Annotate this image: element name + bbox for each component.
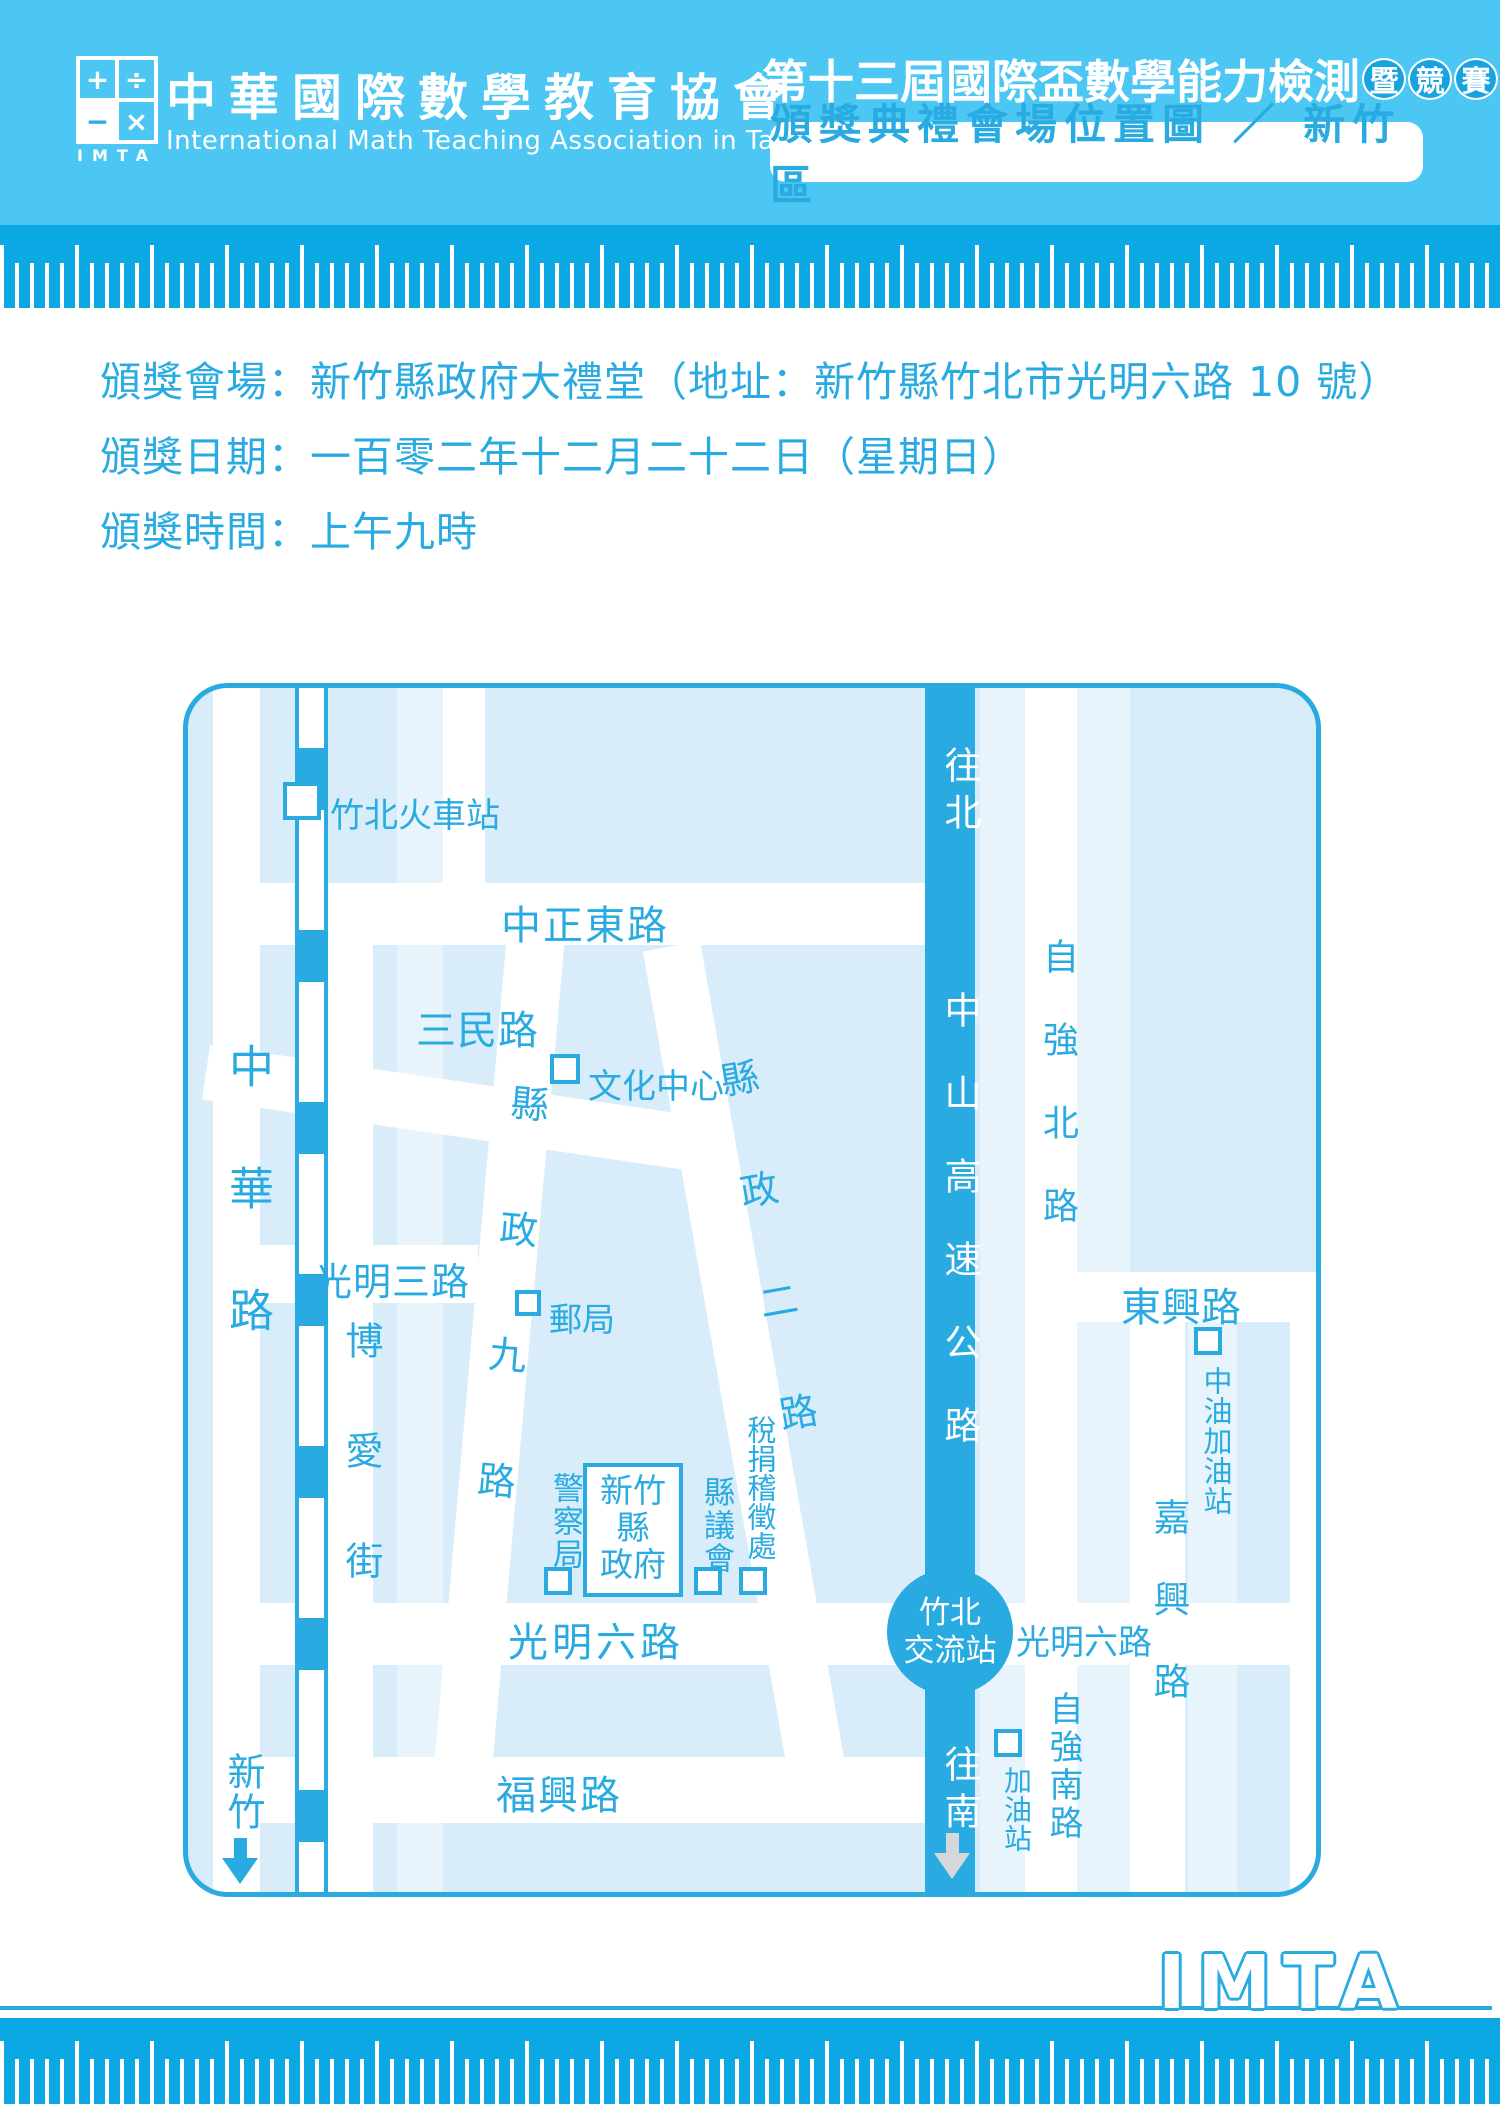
tax-office-marker — [739, 1567, 767, 1595]
train-station-marker — [283, 782, 321, 820]
culture-center-label: 文化中心 — [588, 1059, 724, 1108]
police-label: 警察局 — [543, 1472, 588, 1571]
footer-imta-logo: IMTA — [1158, 1940, 1409, 2026]
label-fuxing: 福興路 — [496, 1763, 622, 1821]
label-guangming6-east: 光明六路 — [1016, 1615, 1152, 1664]
gas-station-marker — [994, 1729, 1022, 1757]
gas-station-label: 加油站 — [996, 1766, 1036, 1853]
ruler-long-ticks — [0, 2041, 1500, 2104]
ceremony-venue: 頒獎會場：新竹縣政府大禮堂（地址：新竹縣竹北市光明六路 10 號） — [100, 345, 1400, 420]
label-guangming3: 光明三路 — [314, 1251, 470, 1306]
hsinchu-arrow-icon — [222, 1838, 258, 1884]
train-station-label: 竹北火車站 — [330, 788, 500, 837]
page-title: 頒獎典禮會場位置圖 ／ 新竹區 — [770, 122, 1423, 182]
plus-icon: + — [80, 60, 115, 98]
road-minor — [443, 688, 485, 883]
label-zhongzheng-east: 中正東路 — [501, 893, 669, 951]
minus-icon: − — [80, 102, 115, 140]
label-zhonghua: 中華路 — [215, 1043, 280, 1409]
county-government-building: 新竹縣 政府 — [583, 1463, 683, 1597]
county-council-label: 縣議會 — [694, 1476, 739, 1575]
post-office-label: 郵局 — [549, 1293, 615, 1341]
header-banner: + ÷ − × IMTA 中華國際數學教育協會 International Ma… — [0, 0, 1500, 225]
logo-acronym: IMTA — [72, 146, 162, 165]
police-marker — [544, 1567, 572, 1595]
zhubei-interchange: 竹北 交流站 — [887, 1569, 1013, 1695]
map-block — [980, 688, 1025, 1897]
road-minor — [1290, 1272, 1321, 1897]
highway-north-label: 往北 — [932, 746, 986, 840]
label-ziqiang-south: 自強南路 — [1039, 1691, 1088, 1843]
label-boai: 博愛街 — [334, 1321, 389, 1651]
highway-south-label: 往南 — [932, 1745, 986, 1839]
ruler-long-ticks — [0, 245, 1500, 308]
badge-sai: 賽 — [1454, 58, 1498, 100]
ceremony-info: 頒獎會場：新竹縣政府大禮堂（地址：新竹縣竹北市光明六路 10 號） 頒獎日期：一… — [100, 345, 1400, 570]
cpc-gas-label: 中油加油站 — [1195, 1366, 1237, 1516]
ceremony-time: 頒獎時間：上午九時 — [100, 495, 1400, 570]
culture-center-marker — [550, 1054, 580, 1084]
to-hsinchu-label: 新竹 — [216, 1752, 271, 1832]
label-guangming6-west: 光明六路 — [508, 1610, 684, 1668]
divide-icon: ÷ — [119, 60, 154, 98]
south-arrow-icon — [934, 1833, 970, 1879]
org-name-en: International Math Teaching Association … — [166, 126, 837, 156]
label-sanmin: 三民路 — [416, 998, 539, 1056]
label-ziqiang-north: 自強北路 — [1031, 938, 1083, 1270]
poster-page: + ÷ − × IMTA 中華國際數學教育協會 International Ma… — [0, 0, 1500, 2104]
ceremony-date: 頒獎日期：一百零二年十二月二十二日（星期日） — [100, 420, 1400, 495]
label-dongxing: 東興路 — [1121, 1275, 1241, 1333]
highway-name-label: 中山高速公路 — [932, 991, 986, 1489]
ruler-strip-top — [0, 225, 1500, 308]
label-jiaxing: 嘉興路 — [1141, 1498, 1195, 1744]
location-map: 竹北火車站 往北 中山高速公路 往南 竹北 交流站 文化中心 郵局 警察局 新竹… — [183, 683, 1321, 1897]
county-council-marker — [694, 1567, 722, 1595]
org-name-zh: 中華國際數學教育協會 — [166, 58, 796, 130]
times-icon: × — [119, 102, 154, 140]
ruler-strip-bottom — [0, 2018, 1500, 2104]
imta-logo: + ÷ − × — [76, 56, 158, 144]
